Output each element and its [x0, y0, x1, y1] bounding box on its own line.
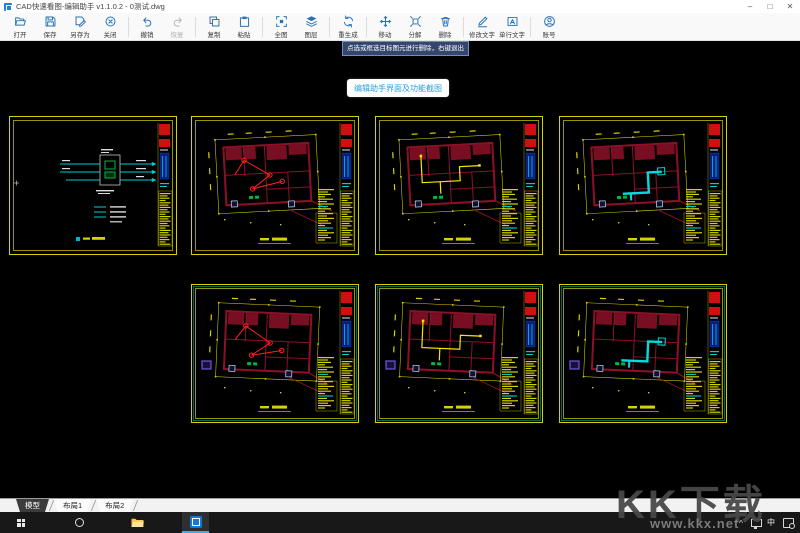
toolbar-button-delete[interactable]: 删除 [430, 14, 460, 40]
toolbar: 打开保存另存为关闭撤销恢复复制粘贴全图图层重生成移动分解删除修改文字单行文字账号 [0, 13, 800, 41]
toolbar-button-redo: 恢复 [162, 14, 192, 40]
toolbar-button-paste[interactable]: 粘贴 [229, 14, 259, 40]
toolbar-button-label: 单行文字 [499, 29, 525, 39]
folder-icon [131, 517, 144, 528]
regen-icon [342, 15, 355, 28]
drawing-canvas[interactable]: 点选或框选目标图元进行删除，右键退出 编辑助手界面及功能截图 [0, 41, 800, 498]
ime-indicator[interactable]: 中 [764, 512, 778, 533]
toolbar-button-save[interactable]: 保存 [35, 14, 65, 40]
account-icon [543, 15, 556, 28]
taskbar: ^ 中 [0, 512, 800, 533]
toolbar-separator [530, 17, 531, 37]
toolbar-separator [262, 17, 263, 37]
toolbar-button-label: 移动 [379, 29, 392, 39]
tab-layout2[interactable]: 布局2 [96, 499, 133, 512]
toolbar-button-single-line-text[interactable]: 单行文字 [497, 14, 527, 40]
window-controls: – □ ✕ [740, 0, 800, 13]
toolbar-button-account[interactable]: 账号 [534, 14, 564, 40]
toolbar-button-label: 图层 [305, 29, 318, 39]
tab-divider [49, 500, 54, 511]
tab-divider [91, 500, 96, 511]
ime-label: 中 [767, 517, 775, 528]
toolbar-button-label: 保存 [44, 29, 57, 39]
toolbar-button-move[interactable]: 移动 [370, 14, 400, 40]
toolbar-button-label: 恢复 [171, 29, 184, 39]
toolbar-button-label: 分解 [409, 29, 422, 39]
paste-icon [238, 15, 251, 28]
toolbar-button-copy[interactable]: 复制 [199, 14, 229, 40]
tray-message-button[interactable] [780, 512, 796, 533]
single-text-icon [506, 15, 519, 28]
full-icon [275, 15, 288, 28]
toolbar-button-close[interactable]: 关闭 [95, 14, 125, 40]
caption-button[interactable]: 编辑助手界面及功能截图 [347, 79, 449, 97]
layers-icon [305, 15, 318, 28]
open-icon [14, 15, 27, 28]
save-icon [44, 15, 57, 28]
toolbar-button-label: 关闭 [104, 29, 117, 39]
explode-icon [409, 15, 422, 28]
toolbar-button-label: 重生成 [338, 29, 358, 39]
toolbar-button-label: 打开 [14, 29, 27, 39]
toolbar-button-label: 撤销 [141, 29, 154, 39]
search-icon [75, 518, 84, 527]
toolbar-button-layers[interactable]: 图层 [296, 14, 326, 40]
toolbar-separator [128, 17, 129, 37]
drawing-2[interactable] [190, 115, 360, 256]
toolbar-button-explode[interactable]: 分解 [400, 14, 430, 40]
message-icon [783, 518, 794, 528]
toolbar-button-label: 另存为 [70, 29, 90, 39]
app-icon [4, 3, 12, 11]
edit-text-icon [476, 15, 489, 28]
drawing-6[interactable] [374, 283, 544, 424]
maximize-button[interactable]: □ [760, 0, 780, 13]
tab-divider [133, 500, 138, 511]
explorer-button[interactable] [124, 512, 150, 533]
toolbar-button-label: 删除 [439, 29, 452, 39]
close-button[interactable]: ✕ [780, 0, 800, 13]
drawing-1[interactable] [8, 115, 178, 256]
start-button[interactable] [8, 512, 34, 533]
display-icon [751, 519, 762, 527]
cad-app-button[interactable] [182, 512, 209, 533]
title-bar: CAD快速看图-编辑助手 v1.1.0.2 - 0测试.dwg – □ ✕ [0, 0, 800, 13]
copy-icon [208, 15, 221, 28]
toolbar-separator [463, 17, 464, 37]
toolbar-button-fit-view[interactable]: 全图 [266, 14, 296, 40]
tray-display-button[interactable] [748, 512, 764, 533]
toolbar-button-label: 账号 [543, 29, 556, 39]
search-button[interactable] [66, 512, 92, 533]
tray-expand-button[interactable]: ^ [734, 512, 748, 533]
toolbar-button-label: 全图 [275, 29, 288, 39]
drawing-7[interactable] [558, 283, 728, 424]
drawing-4[interactable] [558, 115, 728, 256]
toolbar-button-label: 修改文字 [469, 29, 495, 39]
move-icon [379, 15, 392, 28]
chevron-up-icon: ^ [739, 519, 743, 528]
drawing-5[interactable] [190, 283, 360, 424]
toolbar-separator [366, 17, 367, 37]
toolbar-button-label: 复制 [208, 29, 221, 39]
save-as-icon [74, 15, 87, 28]
layout-tab-bar: 模型布局1布局2 [0, 498, 800, 512]
undo-icon [141, 15, 154, 28]
toolbar-button-regenerate[interactable]: 重生成 [333, 14, 363, 40]
window-title: CAD快速看图-编辑助手 v1.1.0.2 - 0测试.dwg [16, 1, 740, 12]
close-icon [104, 15, 117, 28]
toolbar-button-undo[interactable]: 撤销 [132, 14, 162, 40]
minimize-button[interactable]: – [740, 0, 760, 13]
toolbar-button-label: 粘贴 [238, 29, 251, 39]
hint-tooltip: 点选或框选目标图元进行删除，右键退出 [342, 41, 469, 56]
drawing-3[interactable] [374, 115, 544, 256]
toolbar-button-open[interactable]: 打开 [5, 14, 35, 40]
windows-logo-icon [17, 519, 25, 527]
toolbar-separator [195, 17, 196, 37]
toolbar-button-edit-text[interactable]: 修改文字 [467, 14, 497, 40]
tab-layout1[interactable]: 布局1 [54, 499, 91, 512]
redo-icon [171, 15, 184, 28]
tab-model[interactable]: 模型 [16, 499, 49, 512]
toolbar-button-save-as[interactable]: 另存为 [65, 14, 95, 40]
delete-icon [439, 15, 452, 28]
toolbar-separator [329, 17, 330, 37]
cad-app-icon [190, 516, 202, 528]
